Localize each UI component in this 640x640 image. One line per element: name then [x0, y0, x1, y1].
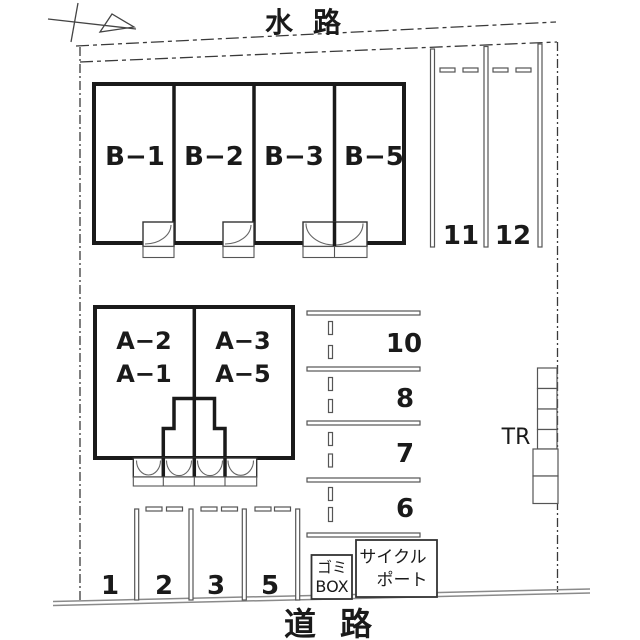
parking-space-1: 1: [101, 573, 119, 599]
parking-space-5: 5: [261, 573, 279, 599]
road-label: 道路: [284, 608, 396, 640]
unit-label-b1: B−1: [105, 144, 165, 170]
trash-box-label-line1: ゴミ: [317, 561, 347, 576]
wheel-stop: [222, 507, 238, 511]
parking-space-3: 3: [207, 573, 225, 599]
trunk-room-label: TR: [502, 427, 531, 449]
parking-space-12: 12: [495, 223, 531, 249]
parking-space-7: 7: [396, 441, 414, 467]
parking-space-6: 6: [396, 496, 414, 522]
building-a-entrances: [133, 458, 256, 486]
unit-label-a1: A−1: [116, 362, 171, 386]
unit-label-a2: A−2: [116, 329, 171, 353]
parking-space-11: 11: [443, 223, 479, 249]
wheel-stop: [329, 433, 333, 446]
wheel-stop: [167, 507, 183, 511]
parking-top-right-lines: [431, 44, 543, 247]
wheel-stop: [146, 507, 162, 511]
parking-space-8: 8: [396, 386, 414, 412]
site-plan-drawing: [0, 0, 640, 640]
wheel-stop: [329, 378, 333, 391]
unit-label-a3: A−3: [215, 329, 270, 353]
door-notch: [143, 222, 174, 247]
door-step: [223, 247, 254, 258]
cycle-port-label-line2: ポート: [377, 573, 428, 590]
wheel-stop: [201, 507, 217, 511]
wheel-stop: [275, 507, 291, 511]
unit-label-b3: B−3: [264, 144, 324, 170]
waterway-label: 水路: [265, 9, 361, 37]
site-plan: 水路 道路 B−1 B−2 B−3 B−5 A−2 A−1 A−3 A−5 11…: [0, 0, 640, 640]
parking-space-2: 2: [155, 573, 173, 599]
wheel-stop: [463, 68, 478, 72]
wheel-stop: [329, 454, 333, 467]
wheel-stop: [329, 508, 333, 522]
trash-box-label-line2: BOX: [315, 579, 348, 595]
unit-label-b2: B−2: [184, 144, 244, 170]
wheel-stop: [329, 346, 333, 359]
wheel-stop: [255, 507, 271, 511]
door-notch: [223, 222, 254, 247]
wheel-stop: [329, 322, 333, 335]
parking-space-10: 10: [386, 331, 422, 357]
door-step: [133, 477, 256, 486]
survey-marker-icon: [48, 3, 136, 42]
wheel-stop: [440, 68, 455, 72]
wheel-stop: [493, 68, 508, 72]
trunk-room-boxes: [533, 368, 558, 504]
unit-label-a5: A−5: [215, 362, 270, 386]
door-step: [143, 247, 174, 258]
unit-label-b5: B−5: [344, 144, 404, 170]
wheel-stop: [516, 68, 531, 72]
cycle-port-label-line1: サイクル: [359, 550, 426, 567]
wheel-stop: [329, 488, 333, 501]
wheel-stop: [329, 400, 333, 413]
